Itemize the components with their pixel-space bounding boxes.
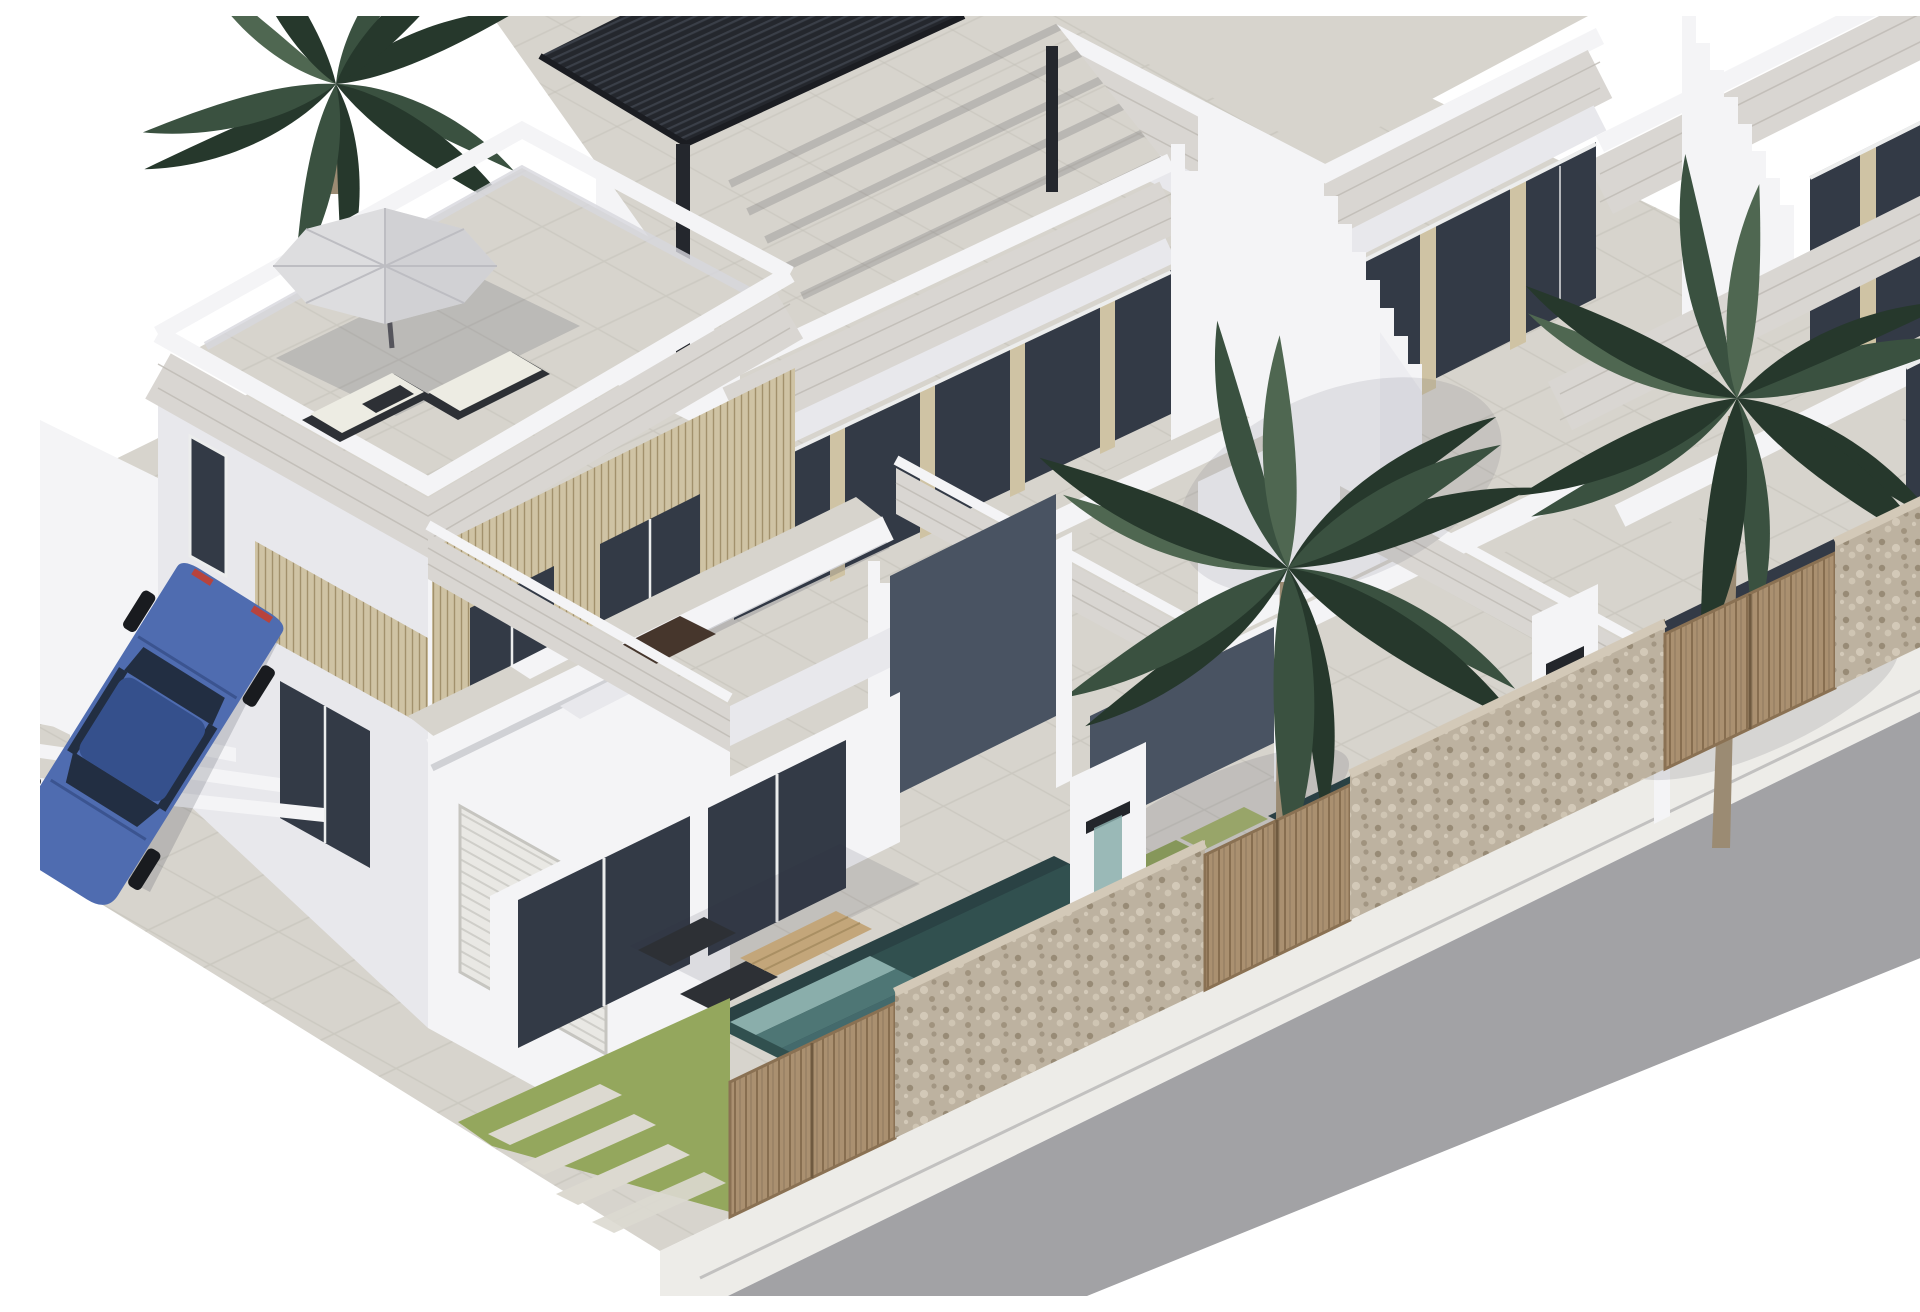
villa1-sw-window [190, 436, 226, 576]
pergola-post [1046, 46, 1058, 192]
render-image: Row of modern white villas, 3D exterior … [40, 16, 1920, 1296]
villa1-porch-pier [1056, 532, 1072, 788]
